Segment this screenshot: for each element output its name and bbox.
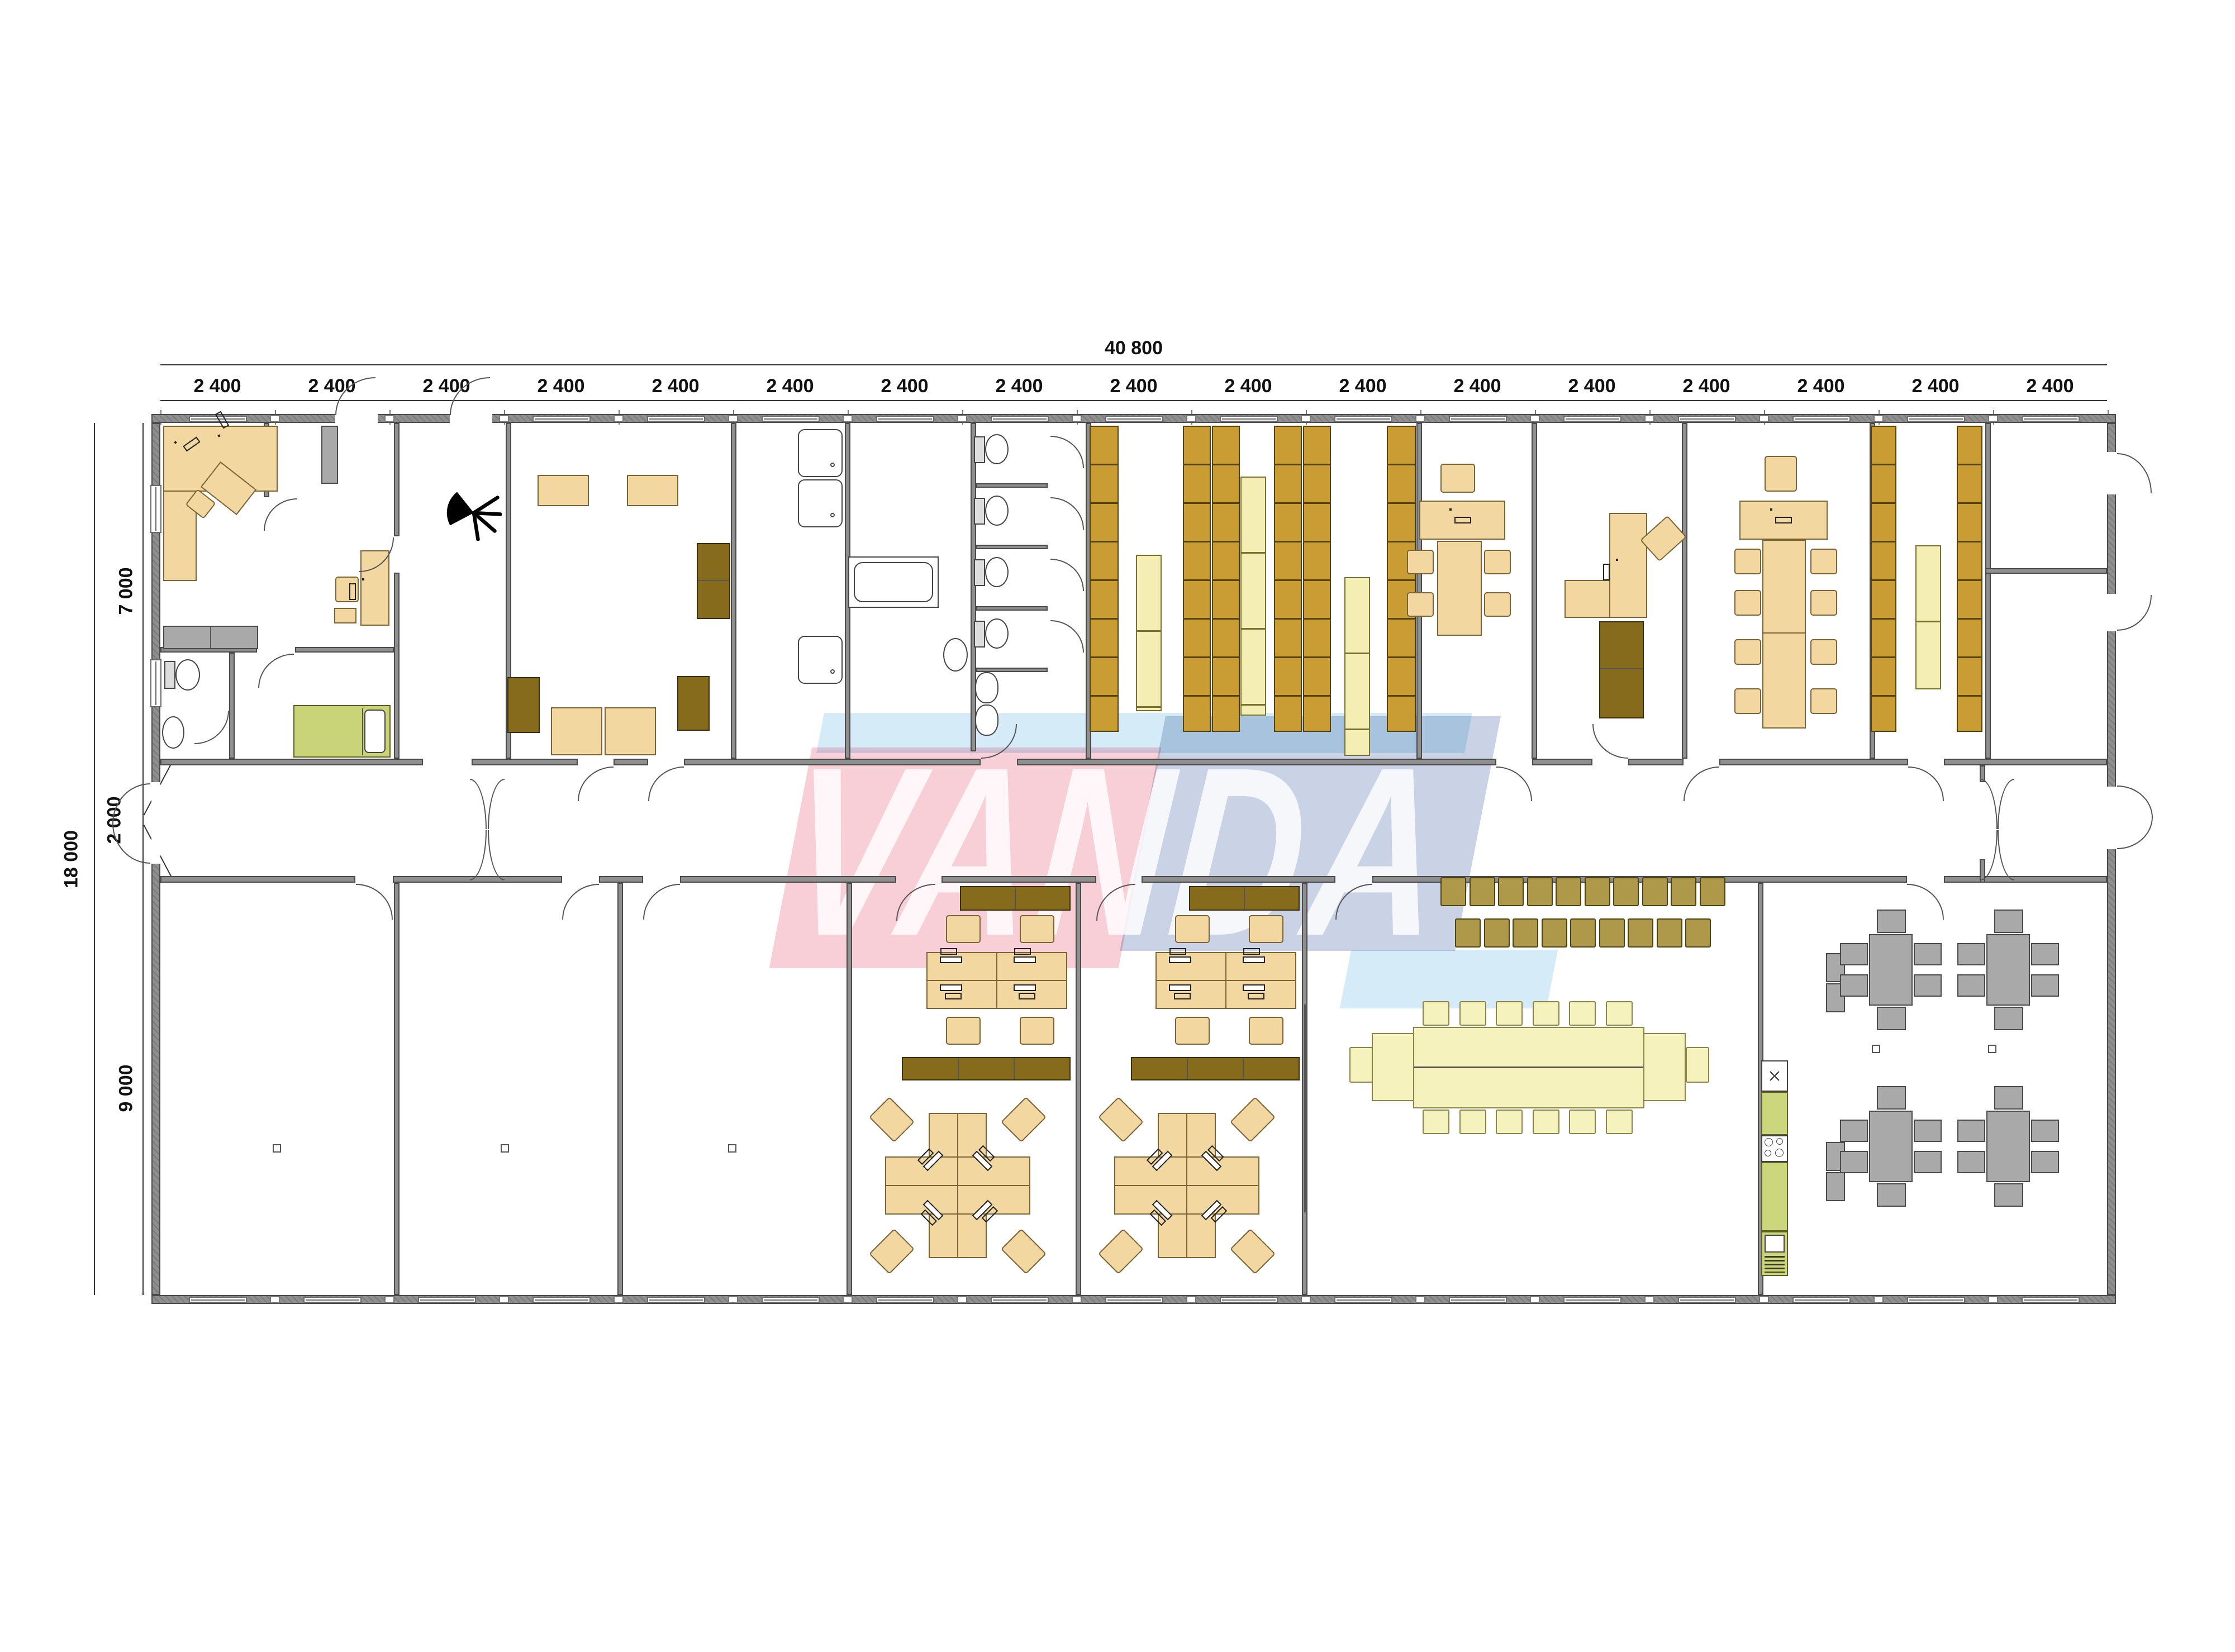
window xyxy=(1334,1297,1392,1303)
window xyxy=(418,1297,476,1303)
chair xyxy=(1569,1110,1596,1134)
fridge-top xyxy=(1765,1235,1785,1253)
wall-joint xyxy=(1301,1296,1311,1303)
storage-shelf-column xyxy=(1090,426,1119,732)
printer-table xyxy=(334,608,356,623)
window xyxy=(189,1297,247,1303)
corridor-wall xyxy=(1944,759,2107,765)
stool xyxy=(1700,877,1725,906)
wall-joint xyxy=(270,1296,280,1303)
dining-chair xyxy=(1840,943,1868,965)
office-chair xyxy=(1440,464,1475,493)
wall-joint xyxy=(1873,415,1884,422)
toilet-tank xyxy=(164,661,175,689)
dining-chair xyxy=(1957,943,1985,965)
office-chair xyxy=(1020,915,1054,943)
locker xyxy=(321,426,338,484)
chair xyxy=(1734,590,1761,616)
office-chair xyxy=(1175,1017,1210,1045)
dining-chair xyxy=(1957,1151,1985,1173)
stool xyxy=(1685,918,1711,948)
dim-line xyxy=(160,364,2107,365)
computer-icon xyxy=(940,984,962,991)
wall-joint xyxy=(957,1296,967,1303)
computer-icon xyxy=(1014,984,1036,991)
chair xyxy=(1459,1110,1486,1134)
pale-rack xyxy=(1344,577,1370,756)
interior-wall xyxy=(976,606,1048,611)
storage-shelf-column xyxy=(1871,426,1896,732)
chair xyxy=(1459,1001,1486,1026)
dim-module-label: 2 400 xyxy=(995,375,1043,397)
interior-wall xyxy=(1416,423,1422,759)
chair xyxy=(1734,688,1761,714)
desk-divider xyxy=(928,980,1066,981)
corridor-wall xyxy=(1532,759,1592,765)
stool xyxy=(1570,918,1596,948)
chair xyxy=(1606,1110,1633,1134)
dim-module-label: 2 400 xyxy=(193,375,241,397)
interior-wall xyxy=(229,653,235,759)
dining-table xyxy=(1986,934,2030,1006)
wall-joint xyxy=(1530,415,1540,422)
interior-wall xyxy=(1985,423,1991,759)
chair xyxy=(1423,1110,1449,1134)
shower-drain xyxy=(830,513,835,517)
dim-line xyxy=(94,423,95,1295)
office-chair xyxy=(1020,1017,1054,1045)
pale-rack xyxy=(1915,545,1941,689)
corridor-wall xyxy=(599,876,643,883)
sink xyxy=(162,716,184,749)
wall-joint xyxy=(1186,1296,1196,1303)
computer-icon xyxy=(1243,956,1265,963)
wall-joint xyxy=(1415,1296,1425,1303)
bathtub-inner xyxy=(854,562,933,602)
dining-chair xyxy=(1877,1183,1906,1207)
shower-drain xyxy=(830,669,835,674)
computer-icon xyxy=(1616,559,1618,561)
toilet-bowl xyxy=(985,557,1009,587)
door-opening xyxy=(450,414,492,423)
door-opening xyxy=(151,782,160,864)
interior-wall xyxy=(731,423,736,759)
chair xyxy=(1569,1001,1596,1026)
corridor-wall xyxy=(160,759,423,765)
chair xyxy=(1484,550,1511,574)
wall-joint xyxy=(1072,1296,1082,1303)
dim-module-label: 2 400 xyxy=(1224,375,1272,397)
sofa-divider xyxy=(1600,668,1643,669)
dining-chair xyxy=(1914,974,1942,997)
dim-module-label: 2 400 xyxy=(537,375,584,397)
floor-plan-canvas: VANDA 40 800 2 4002 4002 4002 4002 4002 … xyxy=(0,0,2235,1652)
low-cabinet xyxy=(1131,1057,1300,1080)
stool xyxy=(1470,877,1495,906)
dining-chair xyxy=(2031,943,2059,965)
wall-joint xyxy=(270,415,280,422)
stool xyxy=(1542,918,1567,948)
wall-joint xyxy=(614,1296,624,1303)
dim-left-total: 18 000 xyxy=(61,830,83,888)
toilet-bowl xyxy=(985,618,1009,649)
chair xyxy=(1686,1047,1709,1083)
chair xyxy=(1407,592,1434,617)
computer-icon xyxy=(1243,984,1265,991)
storage-shelf-column xyxy=(1387,426,1416,732)
office-chair xyxy=(946,915,981,943)
sink xyxy=(943,638,968,672)
interior-wall xyxy=(1985,568,2107,574)
dim-module-label: 2 400 xyxy=(1797,375,1844,397)
cabinet-divider xyxy=(958,1058,959,1079)
stool xyxy=(1628,918,1653,948)
toilet-bowl xyxy=(175,659,200,691)
cabinet xyxy=(507,677,540,733)
toilet-bowl xyxy=(985,434,1009,464)
interior-wall xyxy=(976,668,1048,672)
projection-screen xyxy=(1304,1004,1307,1212)
table xyxy=(551,707,602,755)
stove-burner xyxy=(1765,1150,1771,1156)
window xyxy=(762,1297,820,1303)
interior-wall xyxy=(295,647,394,653)
dimension-layer: 40 800 2 4002 4002 4002 4002 4002 4002 4… xyxy=(0,0,2235,1652)
door-opening xyxy=(2107,452,2116,494)
wall-joint xyxy=(1644,415,1654,422)
toilet-tank xyxy=(974,621,985,648)
storage-shelf-column xyxy=(1274,426,1302,732)
cabinet-divider xyxy=(1244,887,1245,910)
dining-chair xyxy=(2031,974,2059,997)
chair xyxy=(1810,590,1837,616)
window xyxy=(2022,1297,2080,1303)
dining-chair xyxy=(1994,1007,2023,1030)
wall-joint xyxy=(1415,415,1425,422)
dining-table xyxy=(1986,1111,2030,1182)
wall-joint xyxy=(499,415,509,422)
dim-module-label: 2 400 xyxy=(1339,375,1386,397)
window xyxy=(1105,416,1163,422)
wall-joint xyxy=(384,1296,394,1303)
dim-module-label: 2 400 xyxy=(2026,375,2074,397)
stool xyxy=(1513,918,1538,948)
window xyxy=(991,416,1049,422)
kitchen-counter xyxy=(1761,1092,1788,1135)
chair xyxy=(1533,1110,1559,1134)
storage-shelf-column xyxy=(1957,426,1982,732)
shower-stall xyxy=(798,429,843,477)
dim-module-label: 2 400 xyxy=(1911,375,1959,397)
dining-chair xyxy=(2031,1151,2059,1173)
wall-joint xyxy=(728,415,738,422)
bed-pillow xyxy=(364,710,386,753)
interior-wall xyxy=(617,883,623,1295)
bed-line xyxy=(362,708,363,755)
corridor-wall xyxy=(1719,759,1908,765)
dining-chair xyxy=(1840,1151,1868,1173)
chair xyxy=(1407,550,1434,574)
dining-chair xyxy=(1994,1086,2023,1110)
window xyxy=(2022,416,2080,422)
window xyxy=(762,416,820,422)
dim-module-label: 2 400 xyxy=(652,375,699,397)
corridor-wall xyxy=(680,876,896,883)
dining-chair xyxy=(1914,943,1942,965)
cabinet-divider xyxy=(1014,1058,1015,1079)
fridge-grill xyxy=(1765,1256,1785,1273)
door-opening xyxy=(335,414,378,423)
wall-joint xyxy=(384,415,394,422)
window xyxy=(1907,1297,1965,1303)
dining-chair xyxy=(1914,1120,1942,1142)
wall-joint xyxy=(1988,1296,1998,1303)
cabinet-divider xyxy=(1243,1058,1244,1079)
dim-module-label: 2 400 xyxy=(1568,375,1615,397)
interior-wall xyxy=(971,423,976,751)
wall-joint xyxy=(843,415,853,422)
window xyxy=(876,416,934,422)
office-chair xyxy=(1249,915,1283,943)
kitchen-counter xyxy=(1761,1162,1788,1231)
table xyxy=(538,475,589,506)
banquet-table-end xyxy=(1643,1033,1686,1101)
table-seam xyxy=(1763,632,1805,634)
interior-wall xyxy=(394,573,400,759)
cabinet-divider xyxy=(1187,1058,1188,1079)
table xyxy=(627,475,678,506)
conference-table xyxy=(1762,540,1806,729)
wall-joint xyxy=(614,415,624,422)
dim-module-label: 2 400 xyxy=(766,375,814,397)
storage-shelf-column xyxy=(1212,426,1240,732)
dining-table xyxy=(1869,1111,1913,1182)
shower-stall xyxy=(798,636,843,684)
wall-joint xyxy=(728,1296,738,1303)
interior-wall xyxy=(394,423,400,536)
dim-module-label: 2 400 xyxy=(1453,375,1501,397)
chair xyxy=(1533,1001,1559,1026)
computer-icon xyxy=(1014,956,1036,963)
window xyxy=(532,416,591,422)
interior-wall xyxy=(394,883,400,1295)
dim-left-9000: 9 000 xyxy=(116,1064,137,1112)
door-opening xyxy=(2107,787,2116,849)
door-opening xyxy=(2107,594,2116,631)
cluster-seam xyxy=(1115,1185,1258,1186)
window xyxy=(1678,416,1736,422)
meeting-table xyxy=(1437,541,1482,636)
wall-joint xyxy=(957,415,967,422)
window xyxy=(1105,1297,1163,1303)
table-seam xyxy=(1414,1067,1643,1068)
corridor-wall xyxy=(160,876,355,883)
chair xyxy=(1484,592,1511,617)
corridor-wall xyxy=(393,876,562,883)
dining-chair xyxy=(1994,910,2023,933)
corridor-wall xyxy=(1944,876,2107,883)
office-chair xyxy=(1175,915,1210,943)
chair xyxy=(1496,1110,1523,1134)
corridor-wall xyxy=(684,759,981,765)
column-marker xyxy=(1872,1045,1880,1053)
wall-joint xyxy=(1530,1296,1540,1303)
chair xyxy=(1810,549,1837,574)
stove-burner xyxy=(1765,1138,1773,1146)
corner-desk xyxy=(1609,513,1647,618)
storage-shelf-column xyxy=(1303,426,1331,732)
stool xyxy=(1585,877,1610,906)
shower-stall xyxy=(798,479,843,527)
window xyxy=(1907,416,1965,422)
cabinet xyxy=(697,543,730,619)
window xyxy=(1792,416,1851,422)
toilet-bowl xyxy=(985,496,1009,526)
table xyxy=(605,707,656,755)
column-marker xyxy=(501,1144,509,1153)
cabinet-divider xyxy=(1015,887,1016,910)
window xyxy=(532,1297,591,1303)
stove-burner xyxy=(1776,1138,1783,1145)
ceiling-fan-icon xyxy=(446,485,502,541)
interior-wall xyxy=(1532,423,1537,759)
cluster-seam xyxy=(886,1185,1029,1186)
toilet-tank xyxy=(974,436,985,463)
toilet-tank xyxy=(974,498,985,525)
stool xyxy=(1556,877,1581,906)
window xyxy=(1334,416,1392,422)
chair xyxy=(1496,1001,1523,1026)
computer-icon xyxy=(1169,984,1191,991)
sink xyxy=(975,672,998,703)
dining-chair xyxy=(1877,910,1906,933)
chair xyxy=(1810,688,1837,714)
cabinet xyxy=(677,676,710,731)
column-marker xyxy=(728,1144,736,1153)
wall-joint xyxy=(1759,1296,1769,1303)
office-chair xyxy=(1765,456,1797,492)
interior-wall xyxy=(976,483,1048,488)
stool xyxy=(1599,918,1625,948)
stool xyxy=(1657,918,1682,948)
exterior-wall xyxy=(2107,423,2116,1295)
chair xyxy=(1606,1001,1633,1026)
dim-module-label: 2 400 xyxy=(881,375,928,397)
chair xyxy=(1810,639,1837,665)
office-chair xyxy=(946,1017,981,1045)
window xyxy=(991,1297,1049,1303)
window xyxy=(647,416,705,422)
stool xyxy=(1826,1172,1845,1201)
window xyxy=(1678,1297,1736,1303)
office-chair xyxy=(1249,1017,1283,1045)
dining-chair xyxy=(1877,1007,1906,1030)
dining-chair xyxy=(1840,974,1868,997)
sofa xyxy=(1599,621,1644,718)
fan-icon xyxy=(1769,1070,1780,1082)
computer-icon xyxy=(1169,956,1191,963)
window xyxy=(1563,1297,1621,1303)
window xyxy=(1449,416,1507,422)
chair xyxy=(1423,1001,1449,1026)
chair xyxy=(1734,639,1761,665)
interior-wall xyxy=(1682,423,1687,759)
stool xyxy=(1498,877,1524,906)
dining-chair xyxy=(2031,1120,2059,1142)
window xyxy=(150,485,161,533)
chair xyxy=(1349,1047,1373,1083)
stool xyxy=(1613,877,1639,906)
chair xyxy=(1734,549,1761,574)
cabinet-divider xyxy=(698,580,729,581)
corridor-wall xyxy=(1142,876,1335,883)
computer-icon xyxy=(1449,508,1452,511)
window xyxy=(1563,416,1621,422)
dining-chair xyxy=(1840,1120,1868,1142)
window xyxy=(1220,1297,1278,1303)
window xyxy=(303,1297,362,1303)
window xyxy=(1220,416,1278,422)
wall-joint xyxy=(1759,415,1769,422)
computer-icon xyxy=(940,956,962,963)
dim-left-7000: 7 000 xyxy=(116,567,137,615)
window xyxy=(150,659,161,707)
pale-rack xyxy=(1136,555,1162,711)
wall-joint xyxy=(1186,415,1196,422)
desk-divider xyxy=(1157,980,1295,981)
wall-joint xyxy=(1988,415,1998,422)
dining-chair xyxy=(1994,1183,2023,1207)
window xyxy=(1792,1297,1851,1303)
dining-chair xyxy=(1877,1086,1906,1110)
wall-joint xyxy=(1873,1296,1884,1303)
stool xyxy=(1671,877,1696,906)
corridor-wall xyxy=(1628,759,1684,765)
storage-shelf-column xyxy=(1183,426,1211,732)
toilet-tank xyxy=(974,559,985,586)
dim-top-total: 40 800 xyxy=(1105,337,1163,359)
wall-joint xyxy=(1644,1296,1654,1303)
pale-rack xyxy=(1240,477,1266,716)
stool xyxy=(1527,877,1553,906)
interior-wall xyxy=(1076,883,1081,1295)
wall-joint xyxy=(843,1296,853,1303)
dining-chair xyxy=(1957,1120,1985,1142)
window xyxy=(876,1297,934,1303)
interior-wall xyxy=(847,883,852,1295)
column-marker xyxy=(1988,1045,1996,1053)
banquet-table-end xyxy=(1372,1033,1414,1101)
computer-icon xyxy=(1770,508,1772,511)
interior-wall xyxy=(976,545,1048,549)
counter-divider xyxy=(210,627,211,648)
corridor-wall xyxy=(1017,759,1496,765)
stove-burner xyxy=(1775,1149,1784,1157)
stool xyxy=(1440,877,1466,906)
stool xyxy=(1642,877,1668,906)
corridor-wall xyxy=(941,876,1096,883)
wall-joint xyxy=(499,1296,509,1303)
corridor-wall xyxy=(614,759,648,765)
corridor-wall xyxy=(472,759,578,765)
shower-drain xyxy=(830,463,835,467)
low-cabinet xyxy=(902,1057,1071,1080)
stool xyxy=(1484,918,1510,948)
dining-chair xyxy=(1914,1151,1942,1173)
wall-joint xyxy=(1072,415,1082,422)
dining-chair xyxy=(1957,974,1985,997)
window xyxy=(1449,1297,1507,1303)
